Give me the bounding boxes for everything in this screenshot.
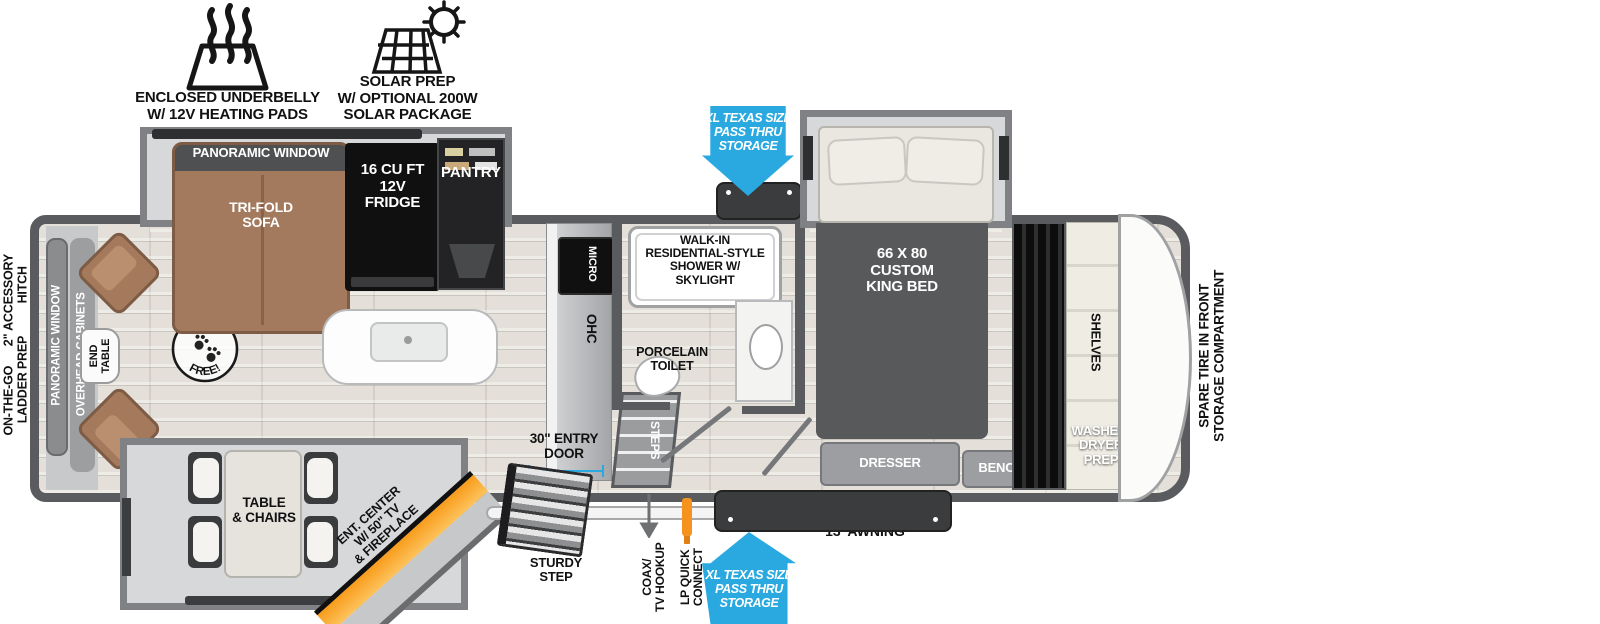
bath-wall bbox=[742, 406, 805, 414]
fridge-label: 16 CU FT 12V FRIDGE bbox=[345, 162, 440, 212]
pass-thru-door-bottom bbox=[714, 490, 952, 532]
kitchen-island bbox=[322, 309, 498, 385]
bath-wall bbox=[612, 218, 622, 410]
pass-thru-top-label: XL TEXAS SIZE PASS THRU STORAGE bbox=[702, 112, 794, 153]
rear-panoramic-window-label: PANORAMIC WINDOW bbox=[51, 245, 64, 445]
dinette-window bbox=[122, 498, 131, 576]
sink-icon bbox=[404, 336, 412, 344]
sofa-label: TRI-FOLD SOFA bbox=[186, 200, 336, 231]
rv-floorplan: ENCLOSED UNDERBELLY W/ 12V HEATING PADS … bbox=[0, 0, 1600, 624]
bath-wall bbox=[612, 402, 670, 410]
sofa-window-label: PANORAMIC WINDOW bbox=[172, 146, 350, 160]
bedroom-window bbox=[803, 136, 813, 180]
ladder-prep-hitch-label: ON-THE-GO 2" ACCESSORY LADDER PREP HITCH bbox=[2, 230, 30, 460]
ohc-label: OHC bbox=[583, 306, 598, 352]
shelves-label: SHELVES bbox=[1088, 296, 1102, 388]
pillow bbox=[827, 136, 907, 186]
tri-fold-sofa bbox=[172, 142, 350, 334]
entry-door-label: 30" ENTRY DOOR bbox=[506, 432, 622, 462]
sturdy-step bbox=[497, 462, 594, 557]
pass-thru-bottom-label: XL TEXAS SIZE PASS THRU STORAGE bbox=[702, 569, 796, 610]
lp-quick-connect-label: LP QUICK CONNECT bbox=[679, 531, 705, 623]
toilet-label: PORCELAIN TOILET bbox=[608, 346, 736, 374]
bed-headboard bbox=[818, 126, 994, 223]
end-table-label: END TABLE bbox=[88, 328, 112, 384]
pantry bbox=[437, 138, 505, 290]
slideout-window-strip bbox=[152, 129, 422, 139]
spare-tire-label: SPARE TIRE IN FRONT STORAGE COMPARTMENT bbox=[1198, 233, 1228, 478]
king-bed-label: 66 X 80 CUSTOM KING BED bbox=[816, 246, 988, 296]
table-chairs-label: TABLE & CHAIRS bbox=[214, 496, 314, 526]
solar-prep-label: SOLAR PREP W/ OPTIONAL 200W SOLAR PACKAG… bbox=[310, 74, 505, 124]
heating-pads-icon bbox=[175, 2, 280, 94]
dresser-label: DRESSER bbox=[820, 456, 960, 470]
pass-thru-door-top bbox=[716, 182, 802, 220]
microwave-label: MICRO bbox=[586, 240, 598, 288]
shower-label: WALK-IN RESIDENTIAL-STYLE SHOWER W/ SKYL… bbox=[630, 234, 780, 287]
steps-label: STEPS bbox=[648, 404, 661, 476]
pass-thru-bottom-arrow: XL TEXAS SIZE PASS THRU STORAGE bbox=[702, 532, 796, 624]
coax-hookup-label: COAX/ TV HOOKUP bbox=[641, 531, 667, 623]
bath-vanity bbox=[735, 300, 793, 402]
sink-icon bbox=[749, 324, 783, 370]
sturdy-step-label: STURDY STEP bbox=[506, 556, 606, 585]
bedroom-window bbox=[999, 136, 1009, 180]
pillow bbox=[905, 136, 985, 186]
solar-prep-icon bbox=[352, 0, 467, 80]
measure-tick bbox=[602, 465, 604, 477]
pantry-label: PANTRY bbox=[437, 165, 505, 182]
bath-bedroom-wall bbox=[795, 218, 805, 414]
underbelly-label: ENCLOSED UNDERBELLY W/ 12V HEATING PADS bbox=[120, 90, 335, 123]
